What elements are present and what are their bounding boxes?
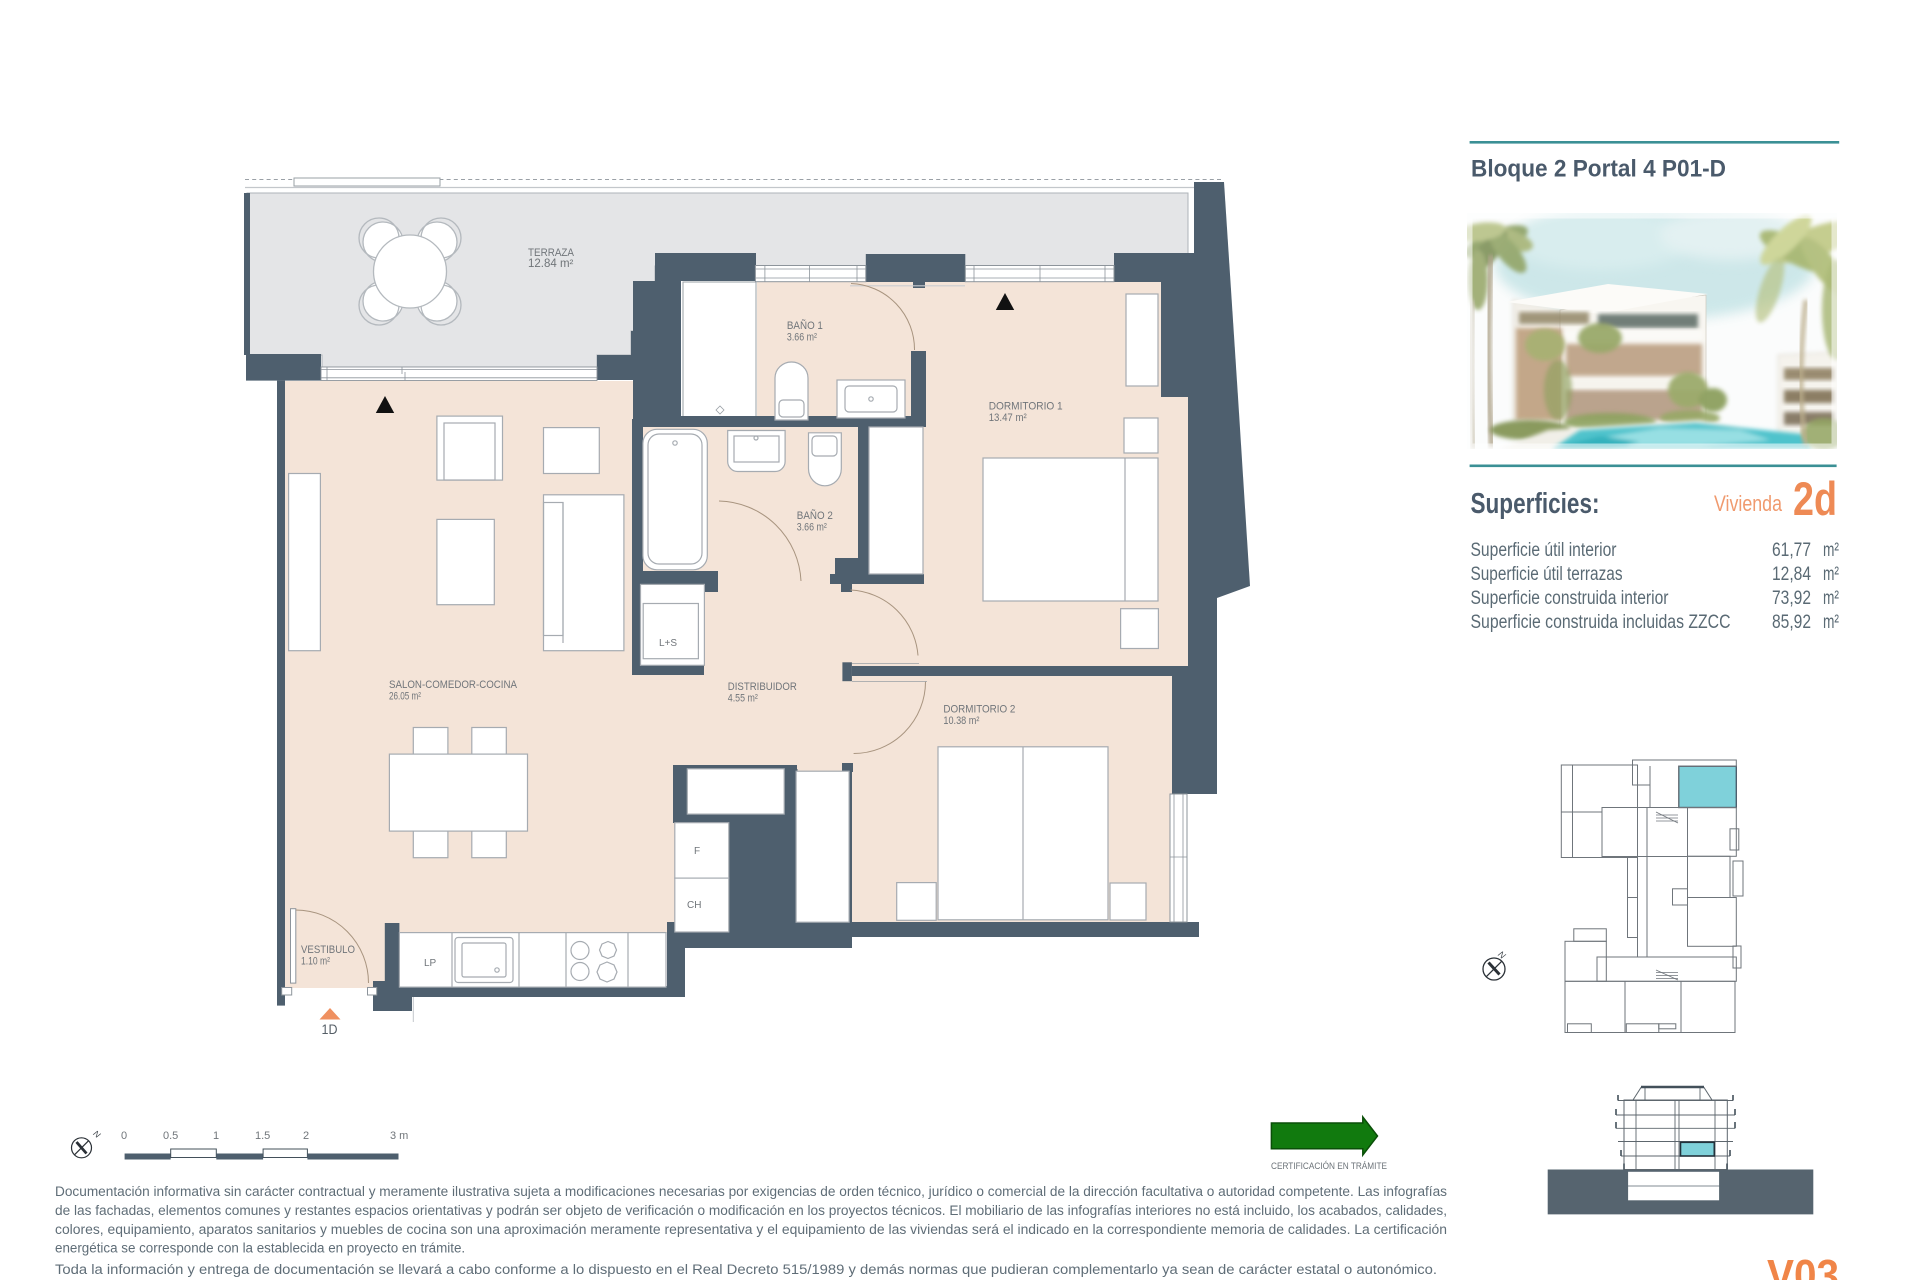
svg-text:m²: m² [1823,564,1839,585]
svg-text:3.66 m²: 3.66 m² [787,332,817,344]
svg-text:Superficie construida interior: Superficie construida interior [1471,588,1670,609]
svg-text:1.10 m²: 1.10 m² [301,956,330,968]
svg-text:Superficie útil interior: Superficie útil interior [1471,540,1618,561]
svg-text:Superficie construida incluida: Superficie construida incluidas ZZCC [1471,612,1731,633]
svg-text:2: 2 [303,1130,309,1142]
svg-text:10.38 m²: 10.38 m² [943,715,979,727]
svg-text:Superficie útil terrazas: Superficie útil terrazas [1471,564,1623,585]
svg-text:BAÑO 2: BAÑO 2 [797,509,833,522]
svg-text:Bloque 2 Portal 4 P01-D: Bloque 2 Portal 4 P01-D [1471,156,1726,183]
svg-text:V03: V03 [1767,1251,1839,1280]
svg-text:LP: LP [424,958,437,969]
svg-text:12.84 m²: 12.84 m² [528,258,574,270]
svg-text:12,84: 12,84 [1772,564,1811,585]
svg-text:Vivienda: Vivienda [1714,491,1783,516]
svg-text:L+S: L+S [659,638,677,649]
svg-text:73,92: 73,92 [1772,588,1811,609]
svg-text:SALON-COMEDOR-COCINA: SALON-COMEDOR-COCINA [389,679,518,691]
svg-text:26.05 m²: 26.05 m² [389,691,421,703]
svg-text:Toda la información y entrega: Toda la información y entrega de documen… [55,1262,1437,1277]
svg-text:colores, equipamiento, aparato: colores, equipamiento, aparatos sanitari… [55,1222,1447,1237]
svg-text:VESTIBULO: VESTIBULO [301,944,355,956]
svg-text:CERTIFICACIÓN EN TRÁMITE: CERTIFICACIÓN EN TRÁMITE [1271,1161,1387,1171]
svg-text:DORMITORIO 1: DORMITORIO 1 [989,401,1063,413]
svg-text:DORMITORIO 2: DORMITORIO 2 [943,704,1015,716]
svg-text:2d: 2d [1793,472,1837,525]
svg-text:85,92: 85,92 [1772,612,1811,633]
svg-text:3.66 m²: 3.66 m² [797,522,827,534]
svg-text:m²: m² [1823,540,1839,561]
svg-text:BAÑO 1: BAÑO 1 [787,319,823,332]
svg-text:61,77: 61,77 [1772,540,1811,561]
svg-text:F: F [694,846,700,857]
svg-text:Documentación informativa sin: Documentación informativa sin carácter c… [55,1184,1447,1199]
svg-text:4.55 m²: 4.55 m² [728,693,758,705]
svg-text:Superficies:: Superficies: [1471,488,1600,520]
svg-text:1: 1 [213,1130,219,1142]
svg-text:m²: m² [1823,612,1839,633]
svg-text:0: 0 [121,1130,127,1142]
svg-text:de las fachadas, elementos com: de las fachadas, elementos comunes y res… [55,1203,1447,1218]
svg-text:1D: 1D [322,1021,338,1037]
svg-text:3 m: 3 m [390,1130,408,1142]
svg-text:CH: CH [687,900,701,911]
svg-text:DISTRIBUIDOR: DISTRIBUIDOR [728,681,797,693]
svg-text:1.5: 1.5 [255,1130,270,1142]
svg-text:0.5: 0.5 [163,1130,178,1142]
svg-text:m²: m² [1823,588,1839,609]
svg-text:13.47 m²: 13.47 m² [989,412,1027,424]
svg-text:N: N [91,1128,103,1140]
svg-text:energética se corresponde con: energética se corresponde con la estable… [55,1241,465,1256]
